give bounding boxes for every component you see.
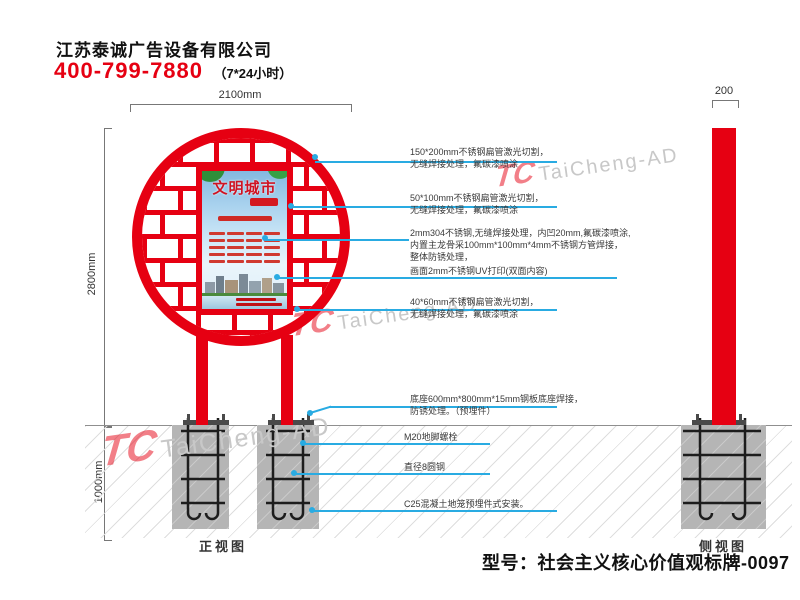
anchor-bolt [696,414,699,420]
annotation-frame-tube: 50*100mm不锈钢扁管激光切割， 无缝焊接处理，氟碳漆喷涂 [410,192,544,216]
service-hours: （7*24小时） [213,66,292,81]
model-number: 型号：社会主义核心价值观标牌-0097 [482,549,790,575]
poster-banner [218,216,272,221]
support-post-right [281,335,293,425]
annotation-lattice-tube: 40*60mm不锈钢扁管激光切割， 无缝焊接处理，氟碳漆喷涂 [410,296,539,320]
rebar-cage-side [683,415,761,531]
support-post-left [196,335,208,425]
side-view-column [712,128,736,425]
leader-line [265,239,409,241]
annotation-uv-print: 画面2mm不锈钢UV打印(双面内容) [410,265,548,277]
leader-dot [294,306,300,312]
anchor-bolt [272,414,275,420]
anchor-bolt [739,414,742,420]
dim-top-width-label: 2100mm [130,89,350,101]
leader-line [312,510,557,512]
poster-subtitle-tag [250,198,278,206]
leader-dot [307,410,313,416]
annotation-base-plate: 底座600mm*800mm*15mm钢板底座焊接， 防锈处理。（预埋件） [410,393,583,417]
annotation-panel-steel: 2mm304不锈钢,无缝焊接处理，内凹20mm,氟碳漆喷涂, 内置主龙骨采100… [410,227,631,263]
annotation-anchor-bolt: M20地脚螺栓 [404,431,458,443]
taicheng-logo-icon: TC [99,420,160,477]
dim-side-width-bracket [712,100,739,108]
dim-main-height-label: 2800mm [86,239,98,309]
dim-side-width-label: 200 [699,85,749,97]
leader-line [294,473,490,475]
leader-dot [288,203,294,209]
spec-sheet: 江苏泰诚广告设备有限公司 400-799-7880 （7*24小时） [0,0,800,600]
poster-title: 文明城市 [202,177,287,198]
leader-dot [309,507,315,513]
phone-row: 400-799-7880 （7*24小时） [54,58,292,84]
dim-main-height-bracket [104,128,112,427]
leader-dot [312,154,318,160]
annotation-ring-tube: 150*200mm不锈钢扁管激光切割， 无缝焊接处理，氟碳漆喷涂 [410,146,549,170]
leader-dot [291,470,297,476]
dim-top-width-bracket [130,104,352,112]
leader-line [277,277,617,279]
annotation-round-steel: 直径8圆钢 [404,461,445,473]
front-view-label: 正视图 [188,536,258,555]
leader-line [303,443,490,445]
poster-footer-text [236,296,282,306]
phone-number: 400-799-7880 [54,58,203,83]
annotation-concrete: C25混凝土地笼预埋件式安装。 [404,498,529,510]
poster-text-lines [202,228,287,263]
leader-dot [274,274,280,280]
anchor-bolt [222,414,225,420]
anchor-bolt [187,414,190,420]
leader-dot [300,440,306,446]
leader-dot [262,235,268,241]
